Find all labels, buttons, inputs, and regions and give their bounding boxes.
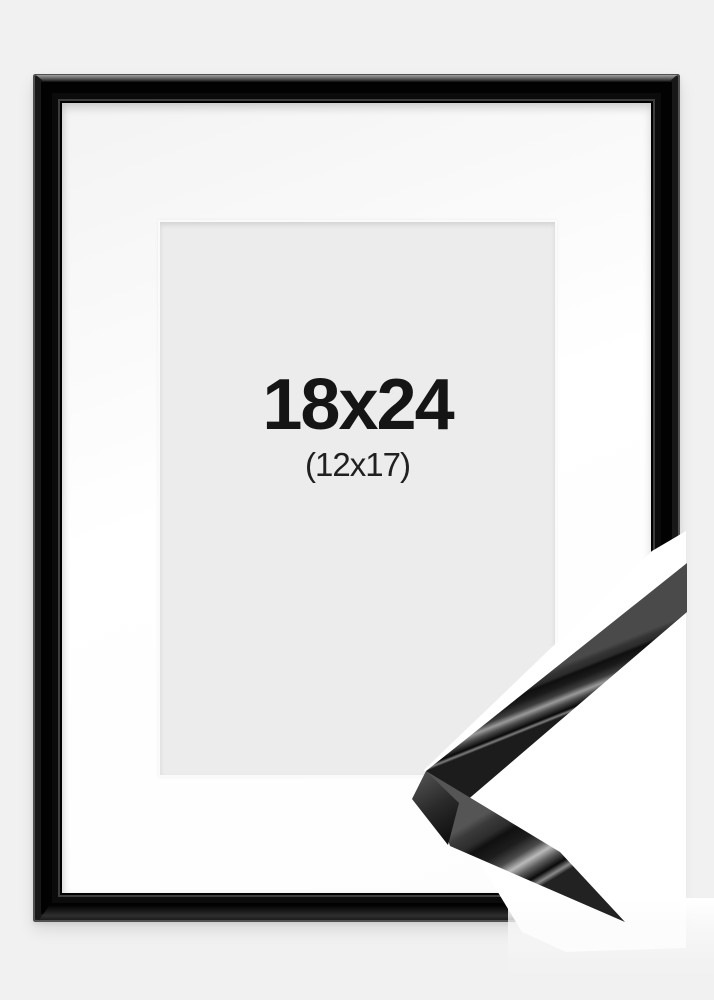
- frame-bottom-face: [39, 906, 674, 920]
- inner-size-label: (12x17): [160, 448, 555, 481]
- size-label-block: 18x24 (12x17): [160, 372, 555, 481]
- frame-mat: 18x24 (12x17): [62, 103, 651, 893]
- frame-top-bevel: [36, 75, 677, 81]
- frame-moulding: 18x24 (12x17): [33, 74, 680, 922]
- frame-opening: 18x24 (12x17): [158, 220, 557, 777]
- size-label: 18x24: [160, 372, 555, 438]
